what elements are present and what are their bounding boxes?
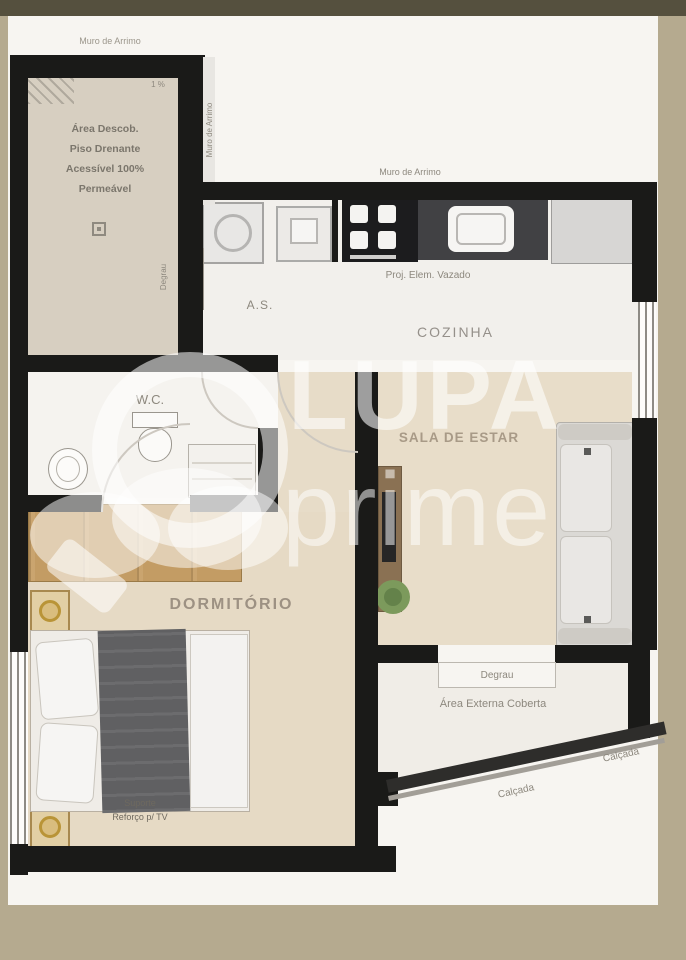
floor-plan-canvas: Degrau Muro de Arrimo Muro de Arrimo Mur… [0,0,686,960]
muro-arrimo-top-left-label: Muro de Arrimo [45,34,175,48]
proj-elem-vazado-label: Proj. Elem. Vazado [348,268,508,282]
door-arc-hall [278,372,358,452]
muro-arrimo-top-center-label: Muro de Arrimo [340,165,480,179]
tv-support-line1: Suporte [76,796,204,810]
wc-label: W.C. [118,390,182,408]
dormitorio-label: DORMITÓRIO [144,594,319,616]
slope-label: 1 % [138,78,178,90]
degrau-step: Degrau [438,662,556,688]
area-descoberta-line1: Área Descob. [38,120,172,140]
area-descoberta-line3: Acessível 100% [38,160,172,180]
muro-arrimo-vertical-label: Muro de Arrimo [203,70,215,190]
area-externa-label: Área Externa Coberta [403,696,583,712]
tv-support-line2: Reforço p/ TV [76,810,204,824]
as-label: A.S. [232,296,288,314]
area-descoberta-line2: Piso Drenante [38,140,172,160]
area-descoberta-label: Área Descob. Piso Drenante Acessível 100… [38,120,172,200]
degrau-label: Degrau [481,670,514,681]
cozinha-label: COZINHA [398,322,513,342]
tv-support-note: Suporte Reforço p/ TV [76,796,204,825]
door-arc-dormitorio [102,424,190,512]
area-descoberta-line4: Permeável [38,180,172,200]
sala-label: SALA DE ESTAR [384,428,534,446]
door-arc-wc [202,372,258,428]
degrau-vertical-label: Degrau [157,247,169,307]
